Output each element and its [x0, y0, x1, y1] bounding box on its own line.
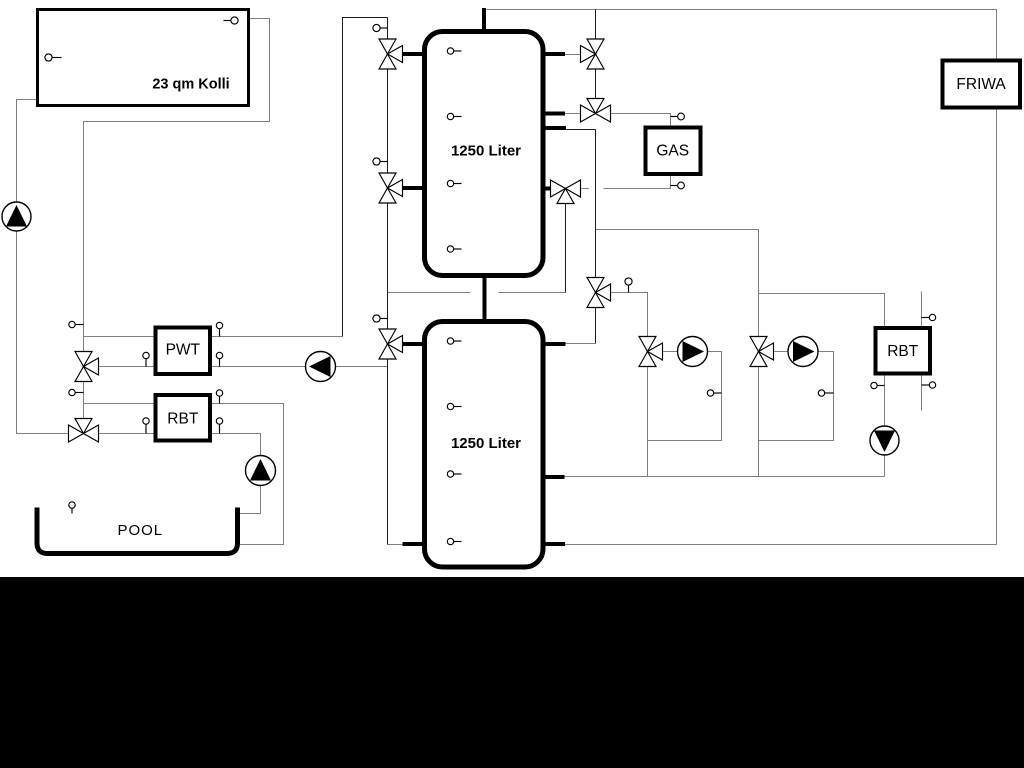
- svg-text:1250 Liter: 1250 Liter: [451, 435, 521, 452]
- svg-text:RBT: RBT: [167, 411, 199, 428]
- svg-text:RBT: RBT: [887, 343, 919, 360]
- svg-text:23 qm Kolli: 23 qm Kolli: [152, 77, 229, 93]
- svg-text:PWT: PWT: [166, 342, 201, 359]
- svg-text:FRIWA: FRIWA: [956, 76, 1006, 93]
- svg-text:1250 Liter: 1250 Liter: [451, 143, 521, 160]
- svg-text:POOL: POOL: [117, 522, 163, 539]
- svg-text:GAS: GAS: [656, 143, 689, 160]
